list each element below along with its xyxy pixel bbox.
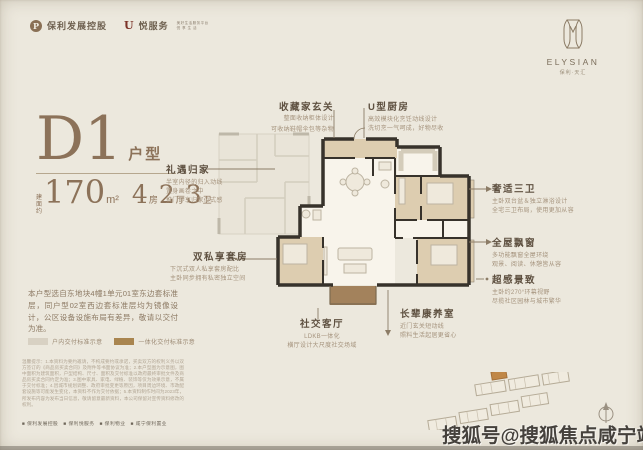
header-logos: P 保利发展控股 U 悦服务 美好生活服务平台悦 享 生 活 xyxy=(30,19,209,32)
callout-entry-foyer: 收藏家玄关 整面收纳柜体设计 可收纳鞋帽伞包等杂物 xyxy=(238,99,334,135)
unit-title-block: D1 户型 建面约 170 m² 4房 2厅 3卫 xyxy=(36,110,186,220)
callout-baywindow: 全屋飘窗 多功能飘窗全屋环绕 观景、阅读、休憩皆从容 xyxy=(492,235,620,270)
unit-spec-row: 建面约 170 m² 4房 2厅 3卫 xyxy=(36,176,186,220)
callout-kitchen: U型厨房 高效模块化烹饪动线设计 洗切烹一气呵成，好物尽收 xyxy=(368,99,493,134)
service-logo-text: 悦服务 xyxy=(139,19,169,32)
legend: 户内交付标准示意 一体化交付标准示意 xyxy=(28,337,195,346)
unit-description: 本户型选自东地块4幢1单元01室东边套标准层，同户型02室西边套标准层均为镜像设… xyxy=(28,288,178,335)
brand-chinese-name: 保利·天汇 xyxy=(530,69,616,76)
area-unit: m² xyxy=(106,194,119,206)
poly-logo-icon: P xyxy=(30,20,42,32)
callout-living: 社交客厅 LDKB一体化 横厅设计大尺度社交场域 xyxy=(283,316,361,351)
poster-canvas: P 保利发展控股 U 悦服务 美好生活服务平台悦 享 生 活 ELYSIAN 保… xyxy=(0,0,643,450)
service-logo-subtext: 美好生活服务平台悦 享 生 活 xyxy=(177,21,209,30)
elysian-monogram-icon xyxy=(558,18,588,50)
callout-homecoming: 礼遇归家 半室内径的归入动线 置身画卷之中 推门即享归家仪式感 xyxy=(166,162,258,205)
callout-view: 超感景致 主卧约270°环幕视野 尽揽社区园林与城市繁华 xyxy=(492,272,620,307)
partner-logos-row: ■ 保利发展控股 ■ 保利悦服务 ■ 保利物业 ■ 咸宁保利置业 xyxy=(22,420,197,427)
legend-item: 户内交付标准示意 xyxy=(28,337,102,346)
area-value: 170 xyxy=(44,176,105,208)
unit-code-suffix: 户型 xyxy=(128,143,162,164)
sohu-watermark: 搜狐号@搜狐焦点咸宁站 xyxy=(442,419,643,448)
balcony-fill xyxy=(330,286,376,305)
unit-code: D1 xyxy=(36,110,122,168)
poly-logo-text: 保利发展控股 xyxy=(47,19,107,32)
legend-swatch xyxy=(114,338,134,345)
u-service-icon: U xyxy=(124,20,134,31)
disclaimer-text: 温馨提示：1.本资料为要约邀请，不构成要约或承诺，买卖双方的权利义务以双方签订的… xyxy=(22,359,184,408)
legend-item: 一体化交付标准示意 xyxy=(114,337,195,346)
highlighted-building xyxy=(491,372,507,380)
callout-elder-room: 长辈康养室 近门玄关短动线 照料生活起居更省心 xyxy=(400,306,512,341)
area-prefix: 建面约 xyxy=(36,195,42,216)
brand-name: ELYSIAN xyxy=(530,57,616,67)
callout-bathrooms: 奢适三卫 主卧双台盆＆独立淋浴设计 全宅三卫布局，使用更加从容 xyxy=(492,181,620,216)
legend-swatch xyxy=(28,338,48,345)
callout-suites: 双私享套房 下沉式双人私享套房配比 主卧同步拥有私密独立空间 xyxy=(170,249,285,284)
bottom-edge-strip xyxy=(0,446,643,450)
brand-block: ELYSIAN 保利·天汇 xyxy=(530,18,616,76)
